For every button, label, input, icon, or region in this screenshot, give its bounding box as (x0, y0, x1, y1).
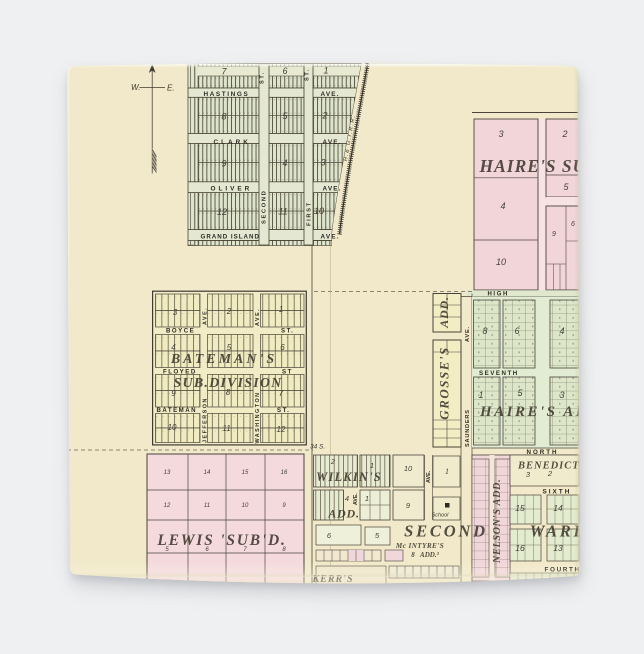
svg-text:ST.: ST. (277, 407, 290, 414)
svg-text:3: 3 (559, 390, 564, 400)
svg-text:9: 9 (221, 159, 226, 169)
svg-text:2: 2 (547, 469, 553, 478)
svg-text:SUB.DIVISION: SUB.DIVISION (174, 376, 283, 391)
svg-text:10: 10 (314, 206, 324, 216)
svg-text:1: 1 (370, 461, 374, 470)
svg-text:4: 4 (345, 494, 349, 503)
svg-text:8: 8 (482, 326, 487, 336)
svg-text:10: 10 (168, 423, 177, 432)
svg-text:ST: ST (282, 368, 293, 375)
svg-text:1: 1 (279, 305, 283, 314)
svg-text:SEVENTH: SEVENTH (479, 370, 519, 377)
svg-text:AVE.: AVE. (203, 307, 209, 325)
svg-text:BATEMAN'S: BATEMAN'S (170, 352, 277, 367)
svg-text:16: 16 (515, 543, 525, 553)
svg-text:6: 6 (514, 326, 519, 336)
svg-text:School: School (432, 513, 450, 519)
svg-text:1: 1 (365, 494, 369, 503)
svg-text:CLARK: CLARK (214, 139, 251, 146)
svg-text:BOYCE: BOYCE (166, 328, 195, 335)
svg-text:5: 5 (227, 343, 232, 352)
svg-text:WILKIN'S: WILKIN'S (316, 470, 382, 484)
svg-text:WASHINGTON: WASHINGTON (255, 391, 261, 443)
svg-text:3: 3 (320, 158, 325, 168)
svg-text:AVE.: AVE. (323, 139, 342, 146)
svg-text:ADD.: ADD. (437, 296, 451, 329)
svg-text:10: 10 (404, 464, 413, 473)
svg-text:11: 11 (204, 503, 210, 509)
svg-text:1: 1 (478, 390, 483, 400)
svg-text:BATEMAN: BATEMAN (157, 407, 198, 414)
svg-text:AVE.: AVE. (323, 186, 342, 193)
svg-text:13: 13 (164, 470, 171, 476)
svg-text:6: 6 (571, 221, 575, 228)
svg-text:AVE.: AVE. (426, 470, 432, 483)
svg-text:WARD: WARD (530, 522, 582, 541)
svg-text:3: 3 (498, 129, 503, 139)
svg-text:14: 14 (553, 503, 563, 513)
svg-text:2: 2 (330, 457, 336, 466)
svg-text:AVE.: AVE. (321, 91, 340, 98)
svg-text:15: 15 (515, 503, 525, 513)
svg-text:2: 2 (561, 129, 567, 139)
svg-text:1: 1 (445, 467, 449, 476)
svg-text:AVE.: AVE. (465, 326, 471, 342)
svg-text:2: 2 (321, 111, 327, 121)
svg-text:HASTINGS: HASTINGS (204, 91, 250, 98)
svg-text:NELSON'S ADD.: NELSON'S ADD. (492, 479, 503, 565)
svg-text:12: 12 (164, 503, 171, 509)
svg-text:11: 11 (278, 207, 287, 217)
svg-text:11: 11 (222, 424, 230, 433)
svg-text:10: 10 (496, 257, 506, 267)
svg-text:W.: W. (131, 83, 140, 92)
svg-text:HAIRE'S AD: HAIRE'S AD (479, 404, 582, 420)
svg-text:SIXTH: SIXTH (543, 489, 572, 496)
svg-text:4: 4 (500, 201, 505, 211)
svg-text:2: 2 (226, 307, 232, 316)
svg-text:13: 13 (553, 543, 563, 553)
svg-text:M⁣c INTYRE'S: M⁣c INTYRE'S (395, 542, 444, 550)
svg-text:SAUNDERS: SAUNDERS (465, 409, 471, 447)
svg-text:E.: E. (167, 83, 175, 92)
svg-text:1: 1 (323, 66, 328, 76)
svg-text:AVE.: AVE. (255, 308, 261, 326)
svg-text:KERR'S: KERR'S (311, 574, 353, 585)
svg-text:4: 4 (559, 326, 564, 336)
svg-text:34 S.: 34 S. (310, 444, 325, 451)
svg-text:FLOYED: FLOYED (163, 368, 197, 375)
svg-text:ST.: ST. (305, 68, 311, 81)
svg-text:16: 16 (281, 470, 288, 476)
svg-text:12: 12 (277, 425, 286, 434)
svg-text:ADD.: ADD. (327, 507, 360, 521)
svg-text:4: 4 (282, 158, 287, 168)
svg-text:4: 4 (171, 343, 176, 352)
svg-text:10: 10 (242, 503, 249, 509)
svg-text:9: 9 (552, 231, 556, 238)
svg-text:8 ADD.³: 8 ADD.³ (411, 551, 439, 559)
svg-text:GROSSE'S: GROSSE'S (437, 346, 452, 419)
svg-text:AVE.: AVE. (321, 234, 340, 241)
svg-text:AVE.: AVE. (353, 493, 359, 505)
svg-text:GRAND ISLAND: GRAND ISLAND (201, 234, 260, 241)
svg-text:SECOND: SECOND (404, 522, 488, 541)
svg-text:14: 14 (204, 470, 211, 476)
svg-text:JEFFERSON: JEFFERSON (203, 397, 209, 443)
svg-text:15: 15 (242, 470, 249, 476)
svg-text:6: 6 (282, 66, 287, 76)
svg-text:6: 6 (280, 343, 285, 352)
svg-text:OLIVER: OLIVER (211, 186, 253, 193)
svg-text:FOURTH: FOURTH (545, 567, 581, 574)
svg-text:SECOND: SECOND (262, 190, 268, 224)
svg-text:3: 3 (173, 308, 178, 317)
svg-text:12: 12 (217, 207, 227, 217)
svg-text:8: 8 (221, 111, 226, 121)
svg-text:ST.: ST. (281, 328, 294, 335)
svg-text:LEWIS 'SUB'D.: LEWIS 'SUB'D. (156, 532, 286, 549)
svg-text:HAIRE'S SUB D: HAIRE'S SUB D (479, 156, 583, 176)
svg-text:FIRST: FIRST (307, 201, 313, 226)
svg-text:ST.: ST. (260, 71, 266, 84)
